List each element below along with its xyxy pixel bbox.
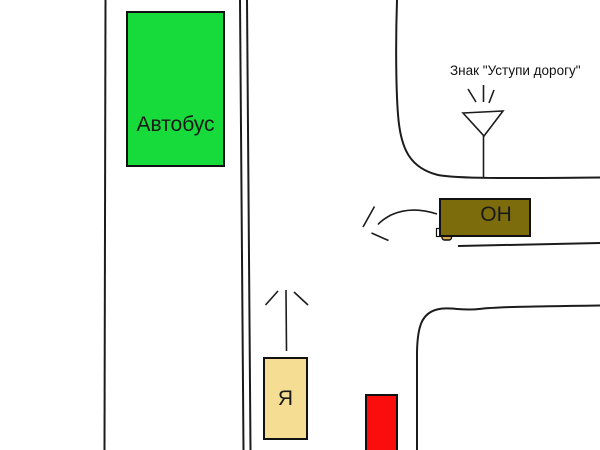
side-road-lower-edge-curve [417, 306, 600, 450]
turn-arrow-shaft [378, 210, 437, 224]
side-road-upper-edge-curve [396, 0, 600, 178]
me-label: Я [278, 387, 293, 411]
up-arrow-icon [266, 290, 309, 351]
him-vehicle-box: ОН [439, 198, 531, 237]
red-vehicle-box [365, 394, 398, 450]
road-center-line-2 [247, 0, 251, 450]
him-label: ОН [480, 203, 512, 227]
up-arrow-shaft [286, 290, 287, 351]
turn-arrow-head-upper [363, 207, 375, 228]
road-left-edge-line [105, 0, 106, 450]
left-turn-arrow-icon [363, 207, 437, 241]
yield-sign-ray-left [468, 89, 476, 102]
side-road-center-line [458, 243, 600, 246]
yield-sign-triangle [463, 111, 503, 136]
me-vehicle-box: Я [263, 357, 308, 440]
bus-label: Автобус [136, 113, 214, 137]
yield-sign-ray-right [489, 90, 494, 103]
traffic-diagram-canvas: Знак "Уступи дорогу" Автобус ОН Я [0, 0, 600, 450]
turn-arrow-head-lower [372, 233, 389, 241]
road-center-line-1 [240, 0, 244, 450]
bus-vehicle-box: Автобус [126, 11, 225, 167]
yield-sign-caption: Знак "Уступи дорогу" [450, 63, 581, 78]
up-arrow-head-right [294, 292, 308, 305]
up-arrow-head-left [266, 291, 279, 305]
yield-sign-triangle-icon [463, 85, 503, 178]
